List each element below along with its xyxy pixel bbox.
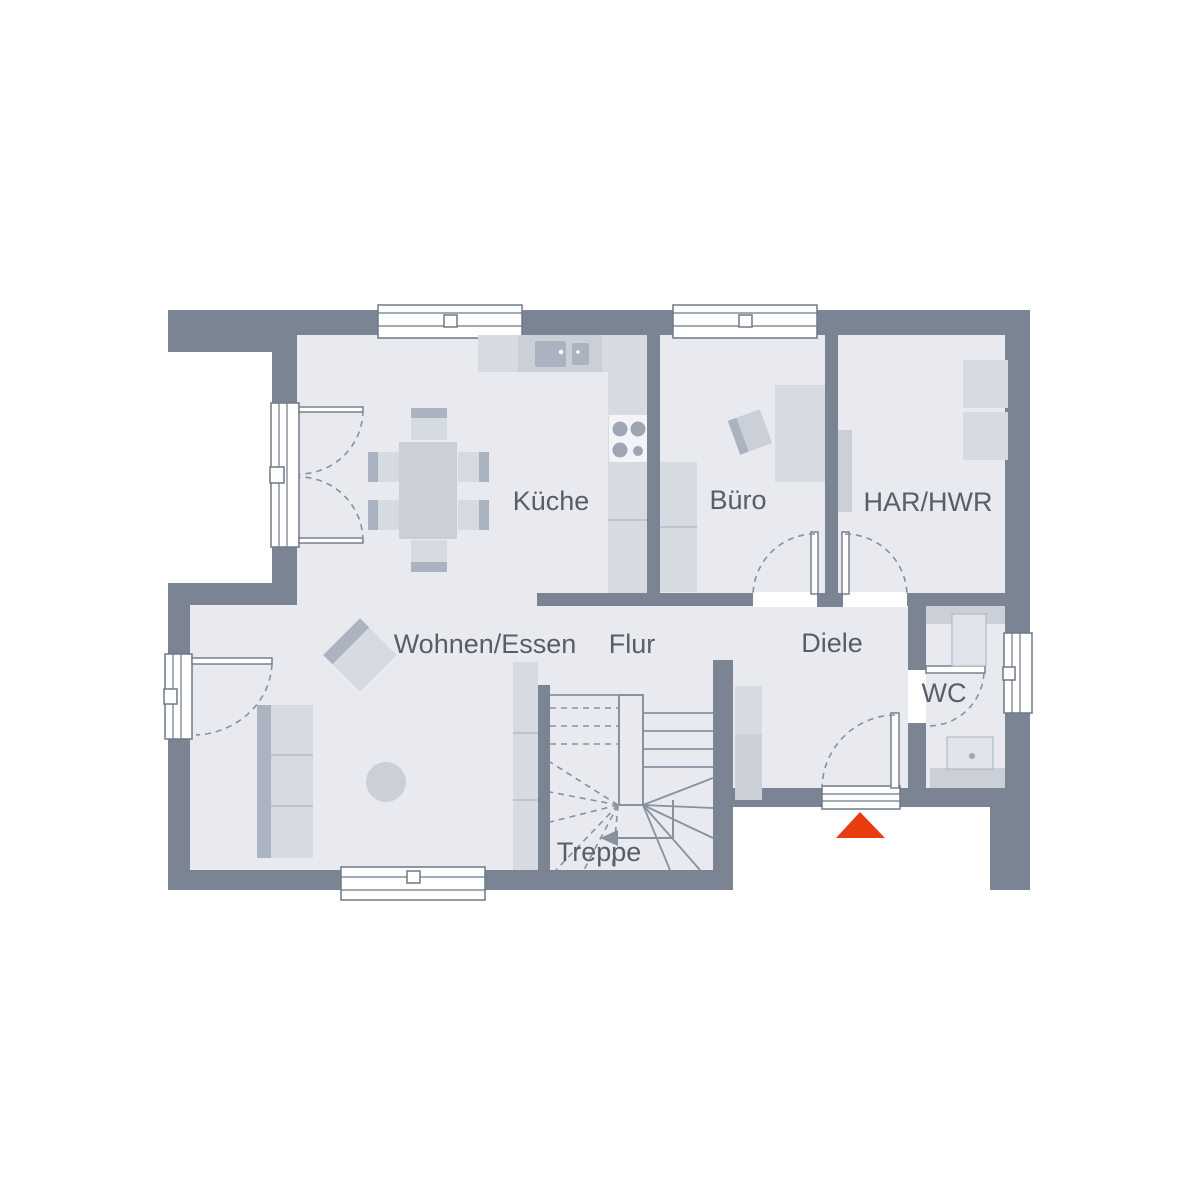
room-label-wc: WC bbox=[922, 678, 967, 708]
stove-burner bbox=[631, 422, 646, 437]
window-dining-top bbox=[378, 305, 522, 338]
faucet-icon bbox=[559, 350, 563, 354]
door-leaf bbox=[299, 407, 363, 412]
wall-stair-right bbox=[713, 660, 733, 870]
chair-backrest bbox=[368, 452, 378, 482]
window-wc-right bbox=[1003, 633, 1032, 713]
floorplan-page: Küche Büro HAR/HWR Wohnen/Essen Flur Die… bbox=[0, 0, 1200, 1200]
wall-door-post bbox=[817, 593, 843, 607]
door-leaf bbox=[891, 713, 899, 788]
dining-table bbox=[399, 442, 457, 539]
sofa bbox=[271, 705, 313, 858]
wall-top bbox=[168, 310, 1030, 335]
room-label-kueche: Küche bbox=[513, 486, 590, 516]
stove-burner bbox=[633, 446, 643, 456]
chair-backrest bbox=[368, 500, 378, 530]
wall-flur-top bbox=[537, 593, 753, 606]
desk bbox=[775, 385, 825, 482]
wall-wc-left-upper bbox=[908, 606, 926, 670]
wall-wc-top bbox=[907, 593, 1005, 606]
room-label-flur: Flur bbox=[609, 629, 656, 659]
window-handle-icon bbox=[1003, 667, 1015, 680]
window-handle-icon bbox=[444, 315, 457, 327]
faucet-icon bbox=[576, 350, 580, 354]
wc-sink bbox=[952, 614, 986, 666]
room-label-treppe: Treppe bbox=[557, 837, 642, 867]
sideboard bbox=[513, 662, 538, 870]
door-leaf bbox=[926, 666, 985, 673]
door-handle-icon bbox=[164, 689, 177, 704]
wall-bottom-right-leg bbox=[990, 788, 1030, 890]
duct bbox=[838, 430, 852, 512]
stove-burner bbox=[613, 443, 628, 458]
dryer bbox=[963, 412, 1008, 460]
wall-top-left-block bbox=[168, 310, 277, 352]
window-handle-icon bbox=[407, 871, 420, 883]
room-label-wohnen-essen: Wohnen/Essen bbox=[394, 629, 577, 659]
room-label-diele: Diele bbox=[801, 628, 863, 658]
door-leaf bbox=[192, 658, 272, 664]
chair-backrest bbox=[411, 408, 447, 418]
wall-kueche-buero bbox=[647, 335, 660, 593]
washer bbox=[963, 360, 1008, 408]
coffee-table bbox=[366, 762, 406, 802]
door-leaf bbox=[842, 532, 849, 594]
diele-furniture bbox=[735, 686, 762, 800]
door-handle-icon bbox=[270, 467, 284, 483]
toilet-flush-icon bbox=[969, 753, 975, 759]
stair-void bbox=[619, 695, 643, 805]
wall-right bbox=[1005, 310, 1030, 790]
kitchen-counter-column bbox=[608, 372, 647, 593]
wc-shelf bbox=[930, 768, 1005, 788]
floorplan-drawing: Küche Büro HAR/HWR Wohnen/Essen Flur Die… bbox=[0, 0, 1200, 1200]
door-leaf bbox=[299, 538, 363, 543]
chair-backrest bbox=[411, 562, 447, 572]
room-label-har-hwr: HAR/HWR bbox=[864, 487, 993, 517]
room-label-buero: Büro bbox=[709, 485, 766, 515]
window-handle-icon bbox=[739, 315, 752, 327]
wall-buero-har bbox=[825, 335, 838, 595]
sofa-backrest bbox=[257, 705, 271, 858]
wall-stair-left bbox=[538, 685, 550, 870]
chair-backrest bbox=[479, 500, 489, 530]
window-living-bottom bbox=[341, 867, 485, 900]
wc-toilet bbox=[947, 737, 993, 769]
wall-wc-left-lower bbox=[908, 723, 926, 788]
stove-burner bbox=[613, 422, 628, 437]
sink-bowl-small bbox=[572, 343, 589, 365]
window-buero-top bbox=[673, 305, 817, 338]
wall-entrance-right bbox=[900, 788, 990, 807]
door-leaf bbox=[811, 532, 818, 594]
wardrobe-upper bbox=[735, 686, 762, 734]
wardrobe-lower bbox=[735, 734, 762, 800]
chair-backrest bbox=[479, 452, 489, 482]
